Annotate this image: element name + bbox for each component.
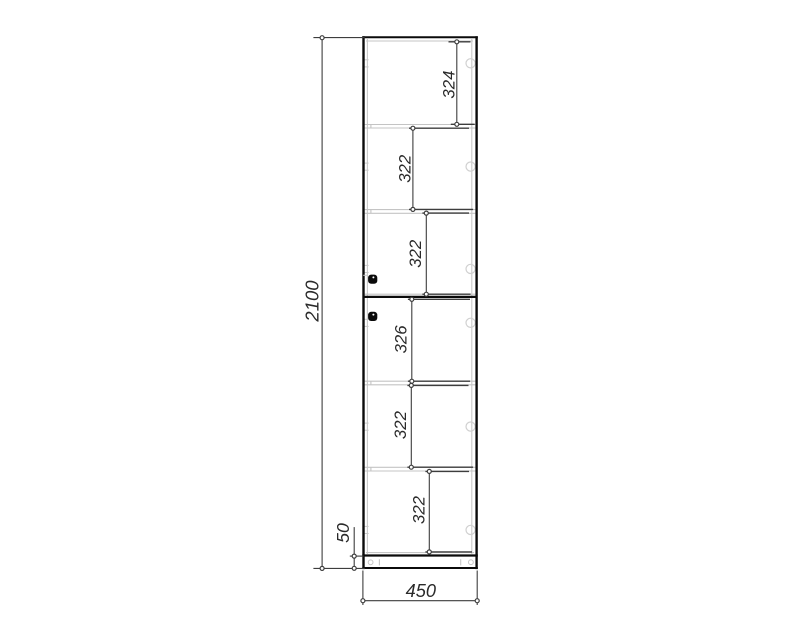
svg-text:322: 322 (391, 410, 410, 439)
svg-text:324: 324 (440, 71, 459, 99)
svg-text:50: 50 (333, 523, 353, 543)
svg-text:322: 322 (395, 154, 414, 183)
svg-text:450: 450 (406, 581, 436, 601)
svg-text:322: 322 (410, 495, 429, 524)
svg-text:322: 322 (406, 239, 425, 268)
svg-text:2100: 2100 (302, 280, 323, 323)
svg-text:326: 326 (391, 325, 410, 354)
